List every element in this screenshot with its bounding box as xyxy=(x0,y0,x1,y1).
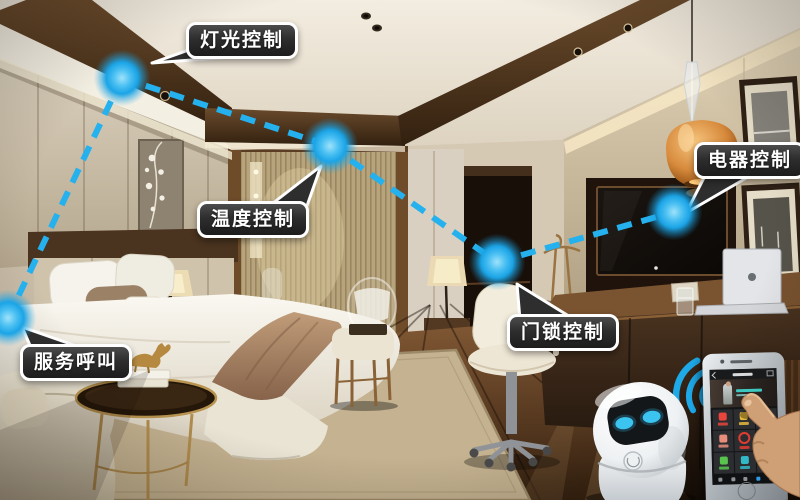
tile-label xyxy=(762,465,772,468)
callout-appliance-control[interactable]: 电器控制 xyxy=(694,142,800,179)
leaf-icon xyxy=(762,412,770,420)
appliance-control-node[interactable] xyxy=(646,184,702,240)
nav-item[interactable] xyxy=(719,478,723,482)
menu-icon[interactable] xyxy=(767,370,774,376)
callout-doorlock-control[interactable]: 门锁控制 xyxy=(507,314,619,351)
phone-camera-icon xyxy=(720,360,724,364)
tile-label xyxy=(739,422,749,425)
banner-text-line xyxy=(736,394,754,396)
callout-service-call[interactable]: 服务呼叫 xyxy=(20,344,132,381)
do-not-disturb-icon xyxy=(739,432,751,444)
banner-person-figure xyxy=(723,383,733,404)
line-service-to-light xyxy=(8,78,122,318)
nav-item[interactable] xyxy=(731,477,735,481)
service-tile[interactable] xyxy=(757,451,778,472)
app-banner xyxy=(710,378,778,408)
smartphone[interactable] xyxy=(702,352,788,500)
service-tile[interactable] xyxy=(734,430,755,451)
banner-person-head xyxy=(725,381,730,386)
iron-icon xyxy=(741,456,749,464)
service-tile[interactable] xyxy=(712,409,733,430)
banner-text-line xyxy=(736,389,762,392)
line-temperature-to-doorlock xyxy=(330,146,497,262)
tile-label xyxy=(718,445,728,448)
tile-label xyxy=(761,422,771,425)
nav-item[interactable] xyxy=(756,477,760,481)
service-tile[interactable] xyxy=(713,452,734,473)
tile-label xyxy=(740,446,750,449)
phone-speaker xyxy=(730,360,752,364)
temperature-control-node[interactable] xyxy=(302,118,358,174)
service-tile[interactable] xyxy=(756,408,777,429)
tile-label xyxy=(718,423,728,426)
app-title-placeholder xyxy=(732,372,752,376)
chat-icon xyxy=(719,435,727,443)
bell-icon xyxy=(718,413,726,421)
service-tile[interactable] xyxy=(735,452,756,473)
line-light-to-temperature xyxy=(122,78,330,146)
service-tile[interactable] xyxy=(713,431,734,452)
more-icon xyxy=(763,455,771,463)
broom-icon xyxy=(740,412,748,420)
service-tile[interactable] xyxy=(756,430,777,451)
phone-screen xyxy=(709,368,779,485)
tile-label xyxy=(741,466,751,469)
nav-item[interactable] xyxy=(744,477,748,481)
light-control-node[interactable] xyxy=(94,50,150,106)
nav-item[interactable] xyxy=(769,476,773,480)
service-tile-grid xyxy=(710,406,779,475)
tile-label xyxy=(762,446,772,449)
smart-room-diagram: 灯光控制 温度控制 电器控制 门锁控制 服务呼叫 xyxy=(0,0,800,500)
washer-icon xyxy=(719,457,727,465)
clock-icon xyxy=(760,432,772,444)
home-button[interactable] xyxy=(737,482,755,500)
doorlock-control-node[interactable] xyxy=(469,234,525,290)
service-robot xyxy=(586,379,696,500)
tile-label xyxy=(719,467,729,470)
connection-lines xyxy=(8,78,674,318)
callout-temperature-control[interactable]: 温度控制 xyxy=(197,201,309,238)
back-icon[interactable] xyxy=(712,371,719,378)
service-tile[interactable] xyxy=(734,408,755,429)
callout-light-control[interactable]: 灯光控制 xyxy=(186,22,298,59)
